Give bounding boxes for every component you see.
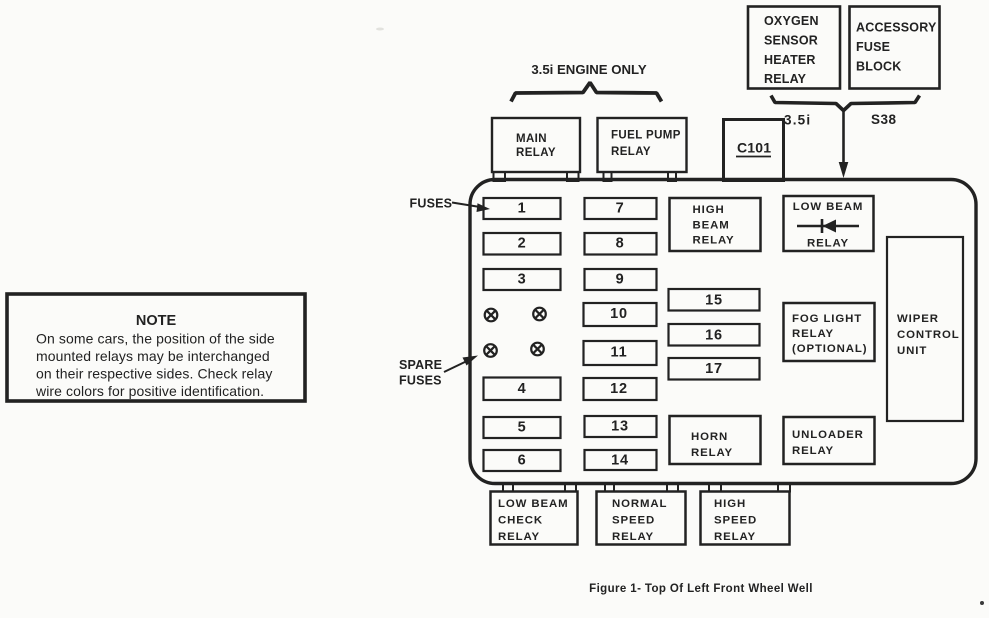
svg-text:1: 1 bbox=[518, 201, 527, 217]
svg-text:4: 4 bbox=[518, 381, 527, 397]
svg-text:BEAM: BEAM bbox=[693, 220, 730, 232]
svg-text:7: 7 bbox=[616, 201, 625, 217]
svg-text:MAIN: MAIN bbox=[516, 133, 547, 145]
svg-text:RELAY: RELAY bbox=[691, 447, 733, 459]
svg-text:8: 8 bbox=[616, 236, 625, 252]
svg-text:CHECK: CHECK bbox=[498, 515, 543, 527]
svg-text:5: 5 bbox=[518, 420, 527, 436]
svg-text:on their respective sides. Che: on their respective sides. Check relay bbox=[36, 366, 272, 382]
svg-text:16: 16 bbox=[705, 328, 723, 344]
svg-text:RELAY: RELAY bbox=[764, 72, 807, 86]
svg-text:2: 2 bbox=[518, 236, 527, 252]
svg-text:RELAY: RELAY bbox=[611, 146, 651, 158]
svg-text:13: 13 bbox=[611, 419, 629, 435]
svg-text:FUSE: FUSE bbox=[856, 40, 890, 54]
svg-text:NORMAL: NORMAL bbox=[612, 498, 667, 510]
svg-text:14: 14 bbox=[611, 453, 629, 469]
svg-text:SPEED: SPEED bbox=[612, 515, 655, 527]
svg-text:NOTE: NOTE bbox=[136, 313, 177, 329]
svg-text:HORN: HORN bbox=[691, 431, 728, 443]
svg-text:RELAY: RELAY bbox=[498, 531, 540, 543]
svg-text:17: 17 bbox=[705, 361, 723, 377]
svg-text:HEATER: HEATER bbox=[764, 53, 816, 67]
svg-text:SENSOR: SENSOR bbox=[764, 34, 818, 48]
svg-text:RELAY: RELAY bbox=[792, 328, 834, 340]
svg-text:SPARE: SPARE bbox=[399, 358, 442, 372]
svg-text:FUEL PUMP: FUEL PUMP bbox=[611, 130, 681, 142]
svg-text:3.5i: 3.5i bbox=[784, 113, 811, 128]
svg-text:UNLOADER: UNLOADER bbox=[792, 429, 864, 441]
svg-text:WIPER: WIPER bbox=[897, 313, 939, 325]
svg-text:10: 10 bbox=[610, 306, 628, 322]
svg-text:Figure 1- Top Of Left Front Wh: Figure 1- Top Of Left Front Wheel Well bbox=[589, 583, 813, 595]
svg-text:RELAY: RELAY bbox=[807, 238, 849, 250]
svg-text:On some cars, the position of: On some cars, the position of the side bbox=[36, 331, 275, 347]
svg-text:UNIT: UNIT bbox=[897, 345, 927, 357]
svg-text:HIGH: HIGH bbox=[693, 204, 725, 216]
svg-text:mounted relays may be intercha: mounted relays may be interchanged bbox=[36, 348, 270, 364]
svg-text:9: 9 bbox=[616, 272, 625, 288]
svg-text:FOG LIGHT: FOG LIGHT bbox=[792, 313, 862, 325]
svg-text:SPEED: SPEED bbox=[714, 515, 757, 527]
svg-text:(OPTIONAL): (OPTIONAL) bbox=[792, 343, 867, 355]
svg-text:15: 15 bbox=[705, 293, 723, 309]
svg-text:S38: S38 bbox=[871, 112, 897, 127]
svg-text:LOW BEAM: LOW BEAM bbox=[793, 201, 863, 213]
svg-text:LOW BEAM: LOW BEAM bbox=[498, 498, 568, 510]
svg-text:6: 6 bbox=[518, 453, 527, 469]
svg-text:ACCESSORY: ACCESSORY bbox=[856, 21, 937, 35]
svg-text:RELAY: RELAY bbox=[612, 531, 654, 543]
svg-text:BLOCK: BLOCK bbox=[856, 60, 901, 74]
svg-text:12: 12 bbox=[610, 381, 628, 397]
svg-text:3.5i ENGINE ONLY: 3.5i ENGINE ONLY bbox=[531, 62, 647, 77]
svg-text:FUSES: FUSES bbox=[410, 197, 453, 211]
svg-text:HIGH: HIGH bbox=[714, 498, 746, 510]
svg-text:OXYGEN: OXYGEN bbox=[764, 14, 819, 28]
svg-text:3: 3 bbox=[518, 272, 527, 288]
svg-text:wire colors for positive ident: wire colors for positive identification. bbox=[35, 383, 264, 399]
svg-text:C101: C101 bbox=[737, 140, 771, 156]
svg-text:11: 11 bbox=[611, 345, 628, 361]
svg-text:RELAY: RELAY bbox=[516, 147, 556, 159]
svg-text:CONTROL: CONTROL bbox=[897, 329, 960, 341]
svg-text:FUSES: FUSES bbox=[399, 374, 442, 388]
svg-text:RELAY: RELAY bbox=[693, 235, 735, 247]
svg-text:RELAY: RELAY bbox=[792, 445, 834, 457]
svg-text:RELAY: RELAY bbox=[714, 531, 756, 543]
